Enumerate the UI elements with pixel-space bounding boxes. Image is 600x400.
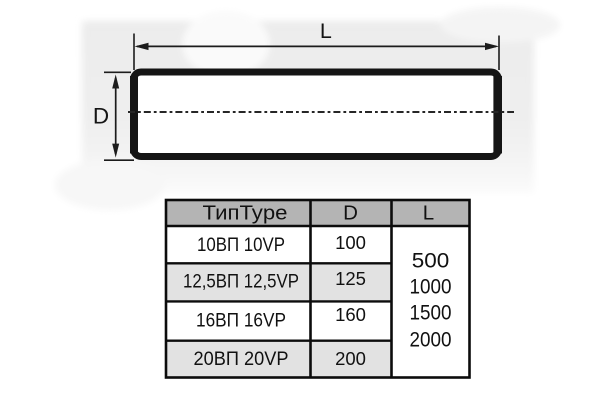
svg-text:L: L	[423, 202, 434, 225]
svg-text:100: 100	[335, 232, 366, 253]
svg-text:500: 500	[412, 247, 450, 272]
svg-text:1000: 1000	[410, 273, 452, 298]
svg-text:2000: 2000	[410, 326, 452, 351]
svg-text:160: 160	[335, 304, 366, 325]
svg-text:D: D	[343, 202, 358, 225]
svg-text:20ВП 20VP: 20ВП 20VP	[194, 348, 289, 370]
svg-text:L: L	[320, 19, 332, 43]
svg-text:ТипType: ТипType	[203, 202, 288, 225]
svg-text:12,5ВП 12,5VP: 12,5ВП 12,5VP	[183, 271, 299, 293]
svg-text:16ВП 16VP: 16ВП 16VP	[196, 309, 286, 331]
svg-text:10ВП 10VP: 10ВП 10VP	[197, 234, 285, 256]
svg-text:200: 200	[335, 348, 366, 369]
svg-text:125: 125	[335, 268, 366, 289]
svg-text:D: D	[93, 104, 109, 129]
svg-text:1500: 1500	[410, 300, 452, 325]
